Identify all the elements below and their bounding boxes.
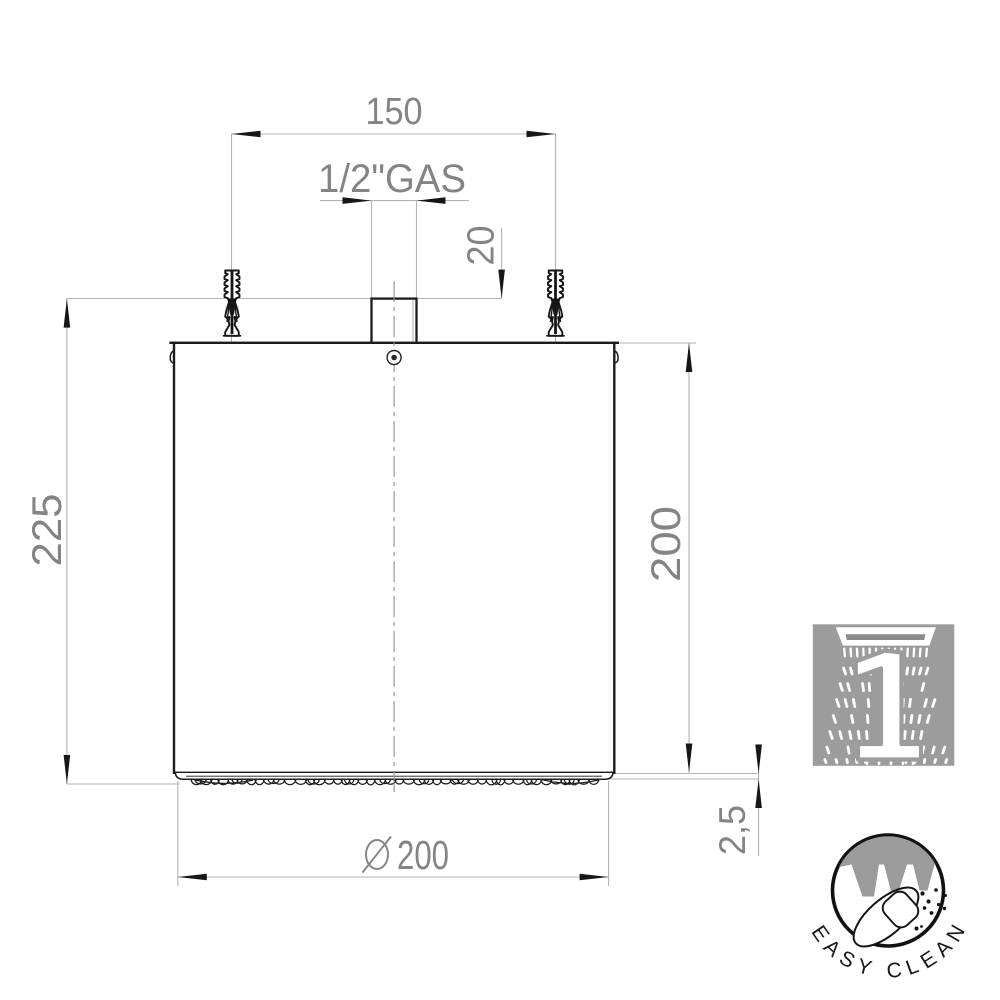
svg-text:20: 20: [461, 226, 503, 266]
svg-text:2,5: 2,5: [712, 805, 753, 855]
svg-text:200: 200: [642, 506, 689, 582]
svg-text:150: 150: [366, 91, 423, 133]
svg-text:200: 200: [397, 832, 449, 878]
svg-text:1/2"GAS: 1/2"GAS: [318, 157, 466, 201]
svg-text:225: 225: [23, 494, 70, 567]
